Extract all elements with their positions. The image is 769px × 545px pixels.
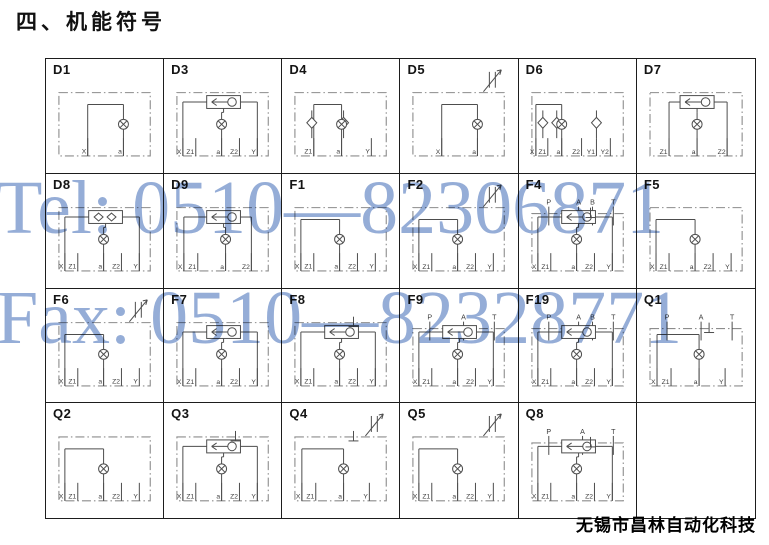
symbol-cell-D8: D8XZ1aZ2Y: [46, 174, 164, 289]
svg-text:P: P: [546, 198, 551, 206]
svg-text:X: X: [296, 494, 301, 501]
svg-text:A: A: [462, 313, 467, 321]
svg-text:X: X: [178, 264, 183, 271]
svg-text:Z1: Z1: [541, 378, 549, 385]
svg-text:Y: Y: [719, 378, 724, 385]
cell-id-label: D1: [53, 62, 71, 77]
svg-text:X: X: [651, 378, 656, 385]
svg-text:A: A: [699, 313, 704, 321]
svg-text:a: a: [118, 149, 122, 156]
svg-text:T: T: [730, 313, 735, 321]
svg-text:Z2: Z2: [572, 149, 580, 156]
svg-text:Y: Y: [370, 378, 375, 385]
symbol-cell-F19: F19PABTXZ1aZ2Y: [519, 289, 637, 404]
symbol-cell-F5: F5XZ1aZ2Y: [637, 174, 755, 289]
symbol-grid: D1XaD3XZ1aZ2YD4Z1aYD5XaD6XZ1aZ2Y1Y2D7Z1a…: [45, 58, 756, 519]
svg-text:a: a: [694, 378, 698, 385]
svg-text:B: B: [590, 198, 595, 206]
symbol-cell-D5: D5Xa: [400, 59, 518, 174]
svg-text:a: a: [98, 264, 102, 271]
svg-text:Y: Y: [370, 264, 375, 271]
svg-text:Z1: Z1: [538, 149, 546, 156]
svg-text:a: a: [453, 264, 457, 271]
svg-text:Z2: Z2: [112, 494, 120, 501]
cell-id-label: F4: [526, 177, 542, 192]
symbol-cell-F4: F4PABTXZ1aZ2Y: [519, 174, 637, 289]
svg-text:Y: Y: [252, 494, 257, 501]
svg-text:A: A: [576, 313, 581, 321]
svg-text:Z2: Z2: [703, 264, 711, 271]
symbol-cell-Q5: Q5XZ1aZ2Y: [400, 403, 518, 518]
symbol-cell-Q8: Q8PATXZ1aZ2Y: [519, 403, 637, 518]
svg-text:Z2: Z2: [585, 264, 593, 271]
svg-text:a: a: [217, 494, 221, 501]
cell-id-label: F9: [407, 292, 423, 307]
svg-text:X: X: [436, 149, 441, 156]
svg-text:a: a: [217, 378, 221, 385]
svg-text:X: X: [532, 378, 537, 385]
svg-text:Z1: Z1: [423, 378, 431, 385]
svg-text:Y1: Y1: [586, 149, 594, 156]
page-title: 四、机能符号: [16, 6, 166, 36]
symbol-cell-Q2: Q2XZ1aZ2Y: [46, 403, 164, 518]
svg-text:X: X: [413, 264, 418, 271]
svg-text:X: X: [177, 494, 182, 501]
svg-text:T: T: [493, 313, 498, 321]
svg-text:Z2: Z2: [467, 264, 475, 271]
svg-text:A: A: [576, 198, 581, 206]
svg-text:Z1: Z1: [187, 378, 195, 385]
svg-text:X: X: [59, 494, 64, 501]
svg-text:Z1: Z1: [661, 378, 669, 385]
svg-text:Z2: Z2: [348, 378, 356, 385]
cell-id-label: D8: [53, 177, 71, 192]
svg-text:a: a: [335, 378, 339, 385]
svg-text:a: a: [571, 494, 575, 501]
svg-text:Y: Y: [488, 378, 493, 385]
symbol-cell-F2: F2XZ1aZ2Y: [400, 174, 518, 289]
cell-id-label: F8: [289, 292, 305, 307]
svg-text:Y: Y: [133, 494, 138, 501]
svg-text:Y: Y: [133, 264, 138, 271]
svg-text:X: X: [295, 378, 300, 385]
svg-text:a: a: [556, 149, 560, 156]
svg-text:Z1: Z1: [659, 264, 667, 271]
cell-id-label: Q8: [526, 406, 544, 421]
cell-id-label: Q2: [53, 406, 71, 421]
svg-text:Z1: Z1: [189, 264, 197, 271]
company-name: 无锡市昌林自动化科技: [576, 511, 756, 536]
svg-text:a: a: [98, 378, 102, 385]
svg-text:a: a: [220, 264, 224, 271]
cell-id-label: D6: [526, 62, 544, 77]
svg-text:Z1: Z1: [305, 378, 313, 385]
svg-text:Z2: Z2: [467, 494, 475, 501]
symbol-cell-Q1: Q1PATXZ1aY: [637, 289, 755, 404]
svg-text:Z1: Z1: [541, 494, 549, 501]
cell-id-label: D3: [171, 62, 189, 77]
symbol-cell-D4: D4Z1aY: [282, 59, 400, 174]
symbol-cell-Q4: Q4XZ1aY: [282, 403, 400, 518]
cell-id-label: D9: [171, 177, 189, 192]
svg-text:a: a: [339, 494, 343, 501]
svg-text:Z2: Z2: [585, 378, 593, 385]
svg-text:Z1: Z1: [68, 378, 76, 385]
svg-text:Z1: Z1: [305, 264, 313, 271]
svg-text:X: X: [532, 494, 537, 501]
symbol-cell-empty: [637, 403, 755, 518]
svg-text:a: a: [453, 494, 457, 501]
svg-text:Z2: Z2: [112, 264, 120, 271]
svg-text:X: X: [530, 149, 535, 156]
svg-text:a: a: [692, 149, 696, 156]
svg-text:Z1: Z1: [68, 494, 76, 501]
svg-text:X: X: [413, 378, 418, 385]
svg-text:A: A: [580, 428, 585, 436]
svg-text:Z1: Z1: [305, 149, 313, 156]
svg-text:a: a: [217, 149, 221, 156]
svg-text:Y: Y: [364, 494, 369, 501]
symbol-cell-D9: D9XZ1aZ2: [164, 174, 282, 289]
cell-id-label: F1: [289, 177, 305, 192]
svg-text:B: B: [590, 313, 595, 321]
svg-text:Z1: Z1: [541, 264, 549, 271]
symbol-cell-D3: D3XZ1aZ2Y: [164, 59, 282, 174]
svg-text:P: P: [428, 313, 433, 321]
svg-text:Y: Y: [366, 149, 371, 156]
svg-text:Z1: Z1: [68, 264, 76, 271]
symbol-cell-F6: F6XZ1aZ2Y: [46, 289, 164, 404]
svg-text:a: a: [571, 378, 575, 385]
svg-text:Y: Y: [606, 494, 611, 501]
svg-text:T: T: [611, 198, 616, 206]
svg-text:a: a: [571, 264, 575, 271]
cell-id-label: Q3: [171, 406, 189, 421]
cell-id-label: Q1: [644, 292, 662, 307]
svg-text:Z1: Z1: [659, 149, 667, 156]
svg-text:X: X: [177, 149, 182, 156]
cell-id-label: F6: [53, 292, 69, 307]
svg-text:a: a: [337, 149, 341, 156]
svg-text:Z2: Z2: [585, 494, 593, 501]
svg-text:a: a: [335, 264, 339, 271]
svg-text:X: X: [177, 378, 182, 385]
svg-text:Y: Y: [488, 494, 493, 501]
svg-text:X: X: [413, 494, 418, 501]
svg-text:Y: Y: [133, 378, 138, 385]
svg-text:Z2: Z2: [230, 494, 238, 501]
svg-text:P: P: [664, 313, 669, 321]
svg-text:Y: Y: [725, 264, 730, 271]
svg-text:a: a: [473, 149, 477, 156]
svg-text:P: P: [546, 428, 551, 436]
symbol-cell-D7: D7Z1aZ2: [637, 59, 755, 174]
symbol-cell-Q3: Q3XZ1aZ2Y: [164, 403, 282, 518]
svg-text:Z1: Z1: [187, 494, 195, 501]
symbol-cell-F7: F7XZ1aZ2Y: [164, 289, 282, 404]
cell-id-label: Q5: [407, 406, 425, 421]
svg-text:Y: Y: [252, 149, 257, 156]
svg-text:a: a: [453, 378, 457, 385]
svg-text:Z1: Z1: [423, 264, 431, 271]
symbol-cell-F8: F8XZ1aZ2Y: [282, 289, 400, 404]
svg-text:Z2: Z2: [112, 378, 120, 385]
cell-id-label: D4: [289, 62, 307, 77]
svg-text:X: X: [59, 264, 64, 271]
svg-text:T: T: [611, 428, 616, 436]
cell-id-label: D7: [644, 62, 662, 77]
svg-text:Y: Y: [606, 378, 611, 385]
svg-text:a: a: [690, 264, 694, 271]
cell-id-label: F5: [644, 177, 660, 192]
svg-text:Z1: Z1: [307, 494, 315, 501]
svg-text:Y: Y: [606, 264, 611, 271]
svg-text:Z1: Z1: [187, 149, 195, 156]
svg-text:X: X: [650, 264, 655, 271]
cell-id-label: F19: [526, 292, 550, 307]
svg-text:Z2: Z2: [230, 378, 238, 385]
svg-text:Y: Y: [252, 378, 257, 385]
svg-text:Z2: Z2: [718, 149, 726, 156]
svg-text:a: a: [98, 494, 102, 501]
cell-id-label: F7: [171, 292, 187, 307]
svg-text:Y2: Y2: [600, 149, 608, 156]
cell-id-label: F2: [407, 177, 423, 192]
svg-text:X: X: [295, 264, 300, 271]
svg-text:T: T: [611, 313, 616, 321]
svg-text:X: X: [59, 378, 64, 385]
symbol-cell-D6: D6XZ1aZ2Y1Y2: [519, 59, 637, 174]
symbol-cell-F1: F1XZ1aZ2Y: [282, 174, 400, 289]
svg-text:X: X: [82, 149, 87, 156]
symbol-cell-F9: F9PATXZ1aZ2Y: [400, 289, 518, 404]
svg-text:Z2: Z2: [348, 264, 356, 271]
svg-text:Z2: Z2: [242, 264, 250, 271]
svg-text:Z2: Z2: [467, 378, 475, 385]
cell-id-label: Q4: [289, 406, 307, 421]
svg-text:X: X: [532, 264, 537, 271]
svg-text:Y: Y: [488, 264, 493, 271]
page: 四、机能符号 D1XaD3XZ1aZ2YD4Z1aYD5XaD6XZ1aZ2Y1…: [0, 0, 769, 545]
svg-text:P: P: [546, 313, 551, 321]
svg-text:Z1: Z1: [423, 494, 431, 501]
cell-id-label: D5: [407, 62, 425, 77]
symbol-cell-D1: D1Xa: [46, 59, 164, 174]
svg-text:Z2: Z2: [230, 149, 238, 156]
